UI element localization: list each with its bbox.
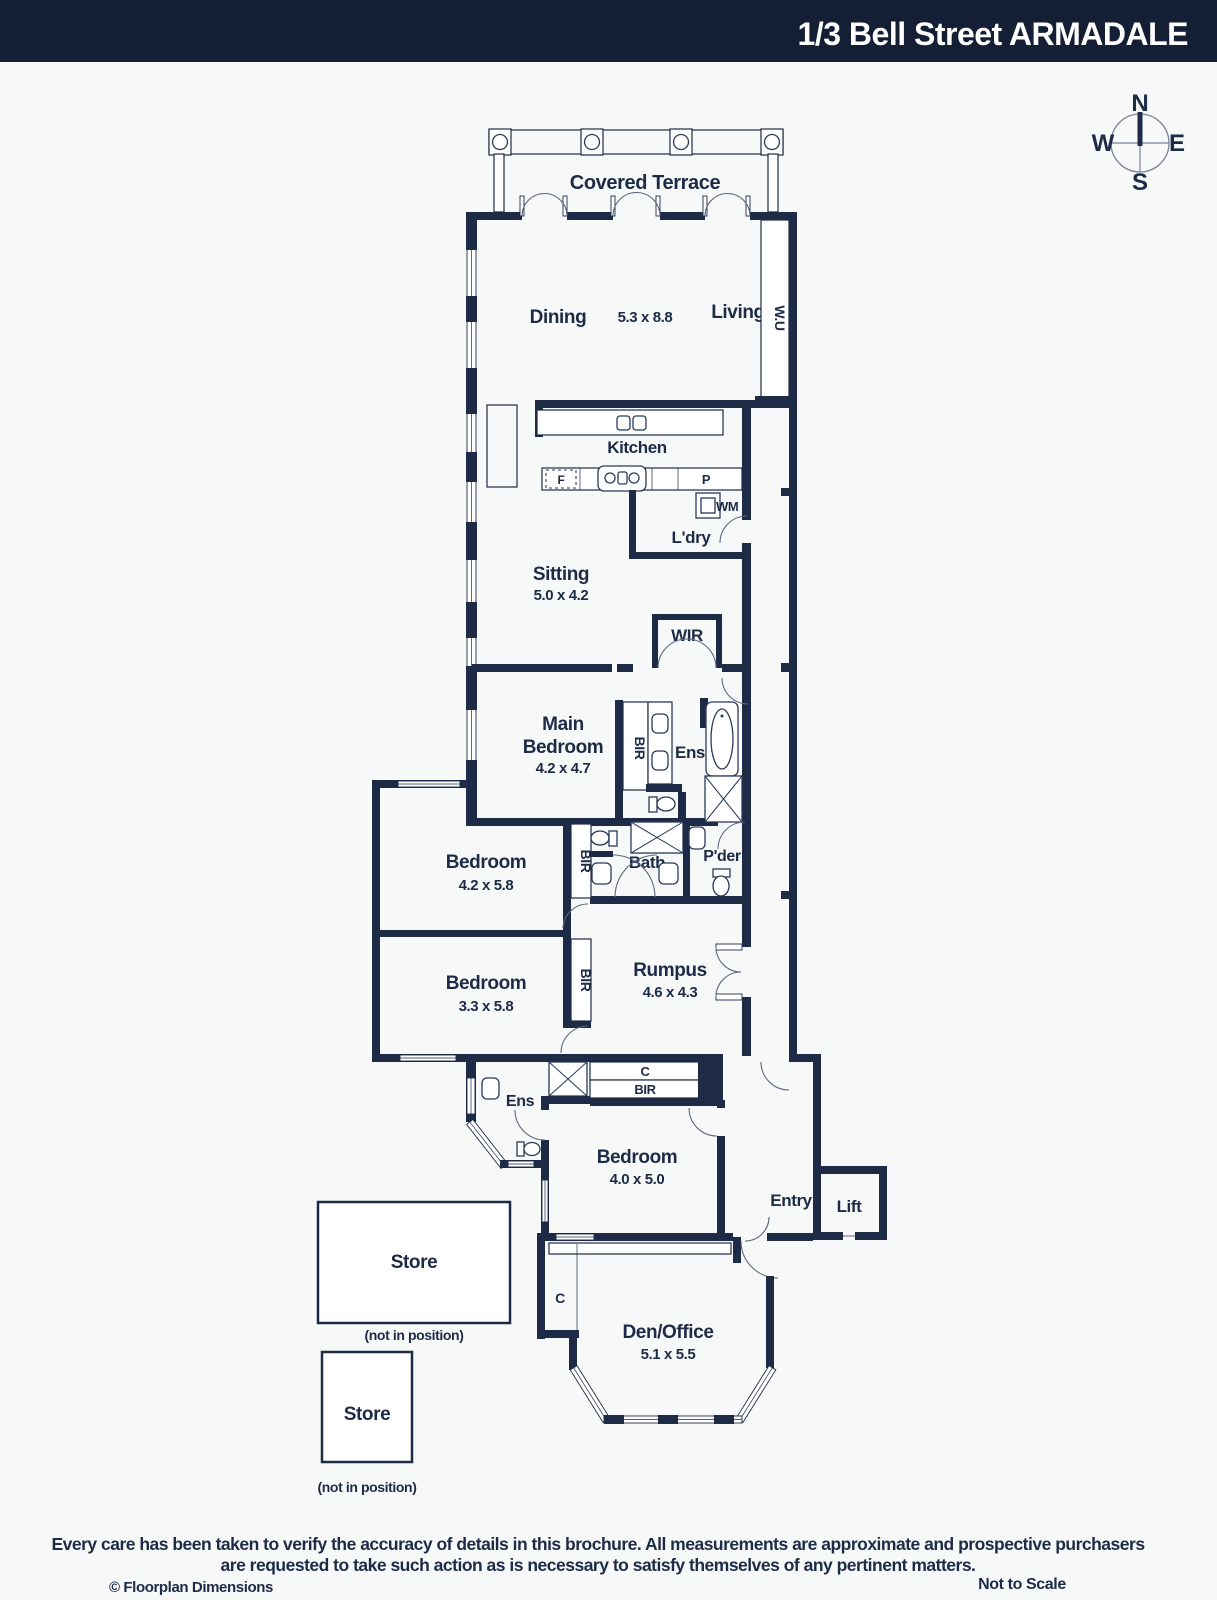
toilet-symbol (517, 1142, 540, 1156)
label-cupboard-1: C (641, 1064, 651, 1079)
page-title: 1/3 Bell Street ARMADALE (798, 16, 1189, 52)
copyright: © Floorplan Dimensions (109, 1579, 273, 1596)
sitting: Sitting 5.0 x 4.2 (533, 564, 589, 604)
room-dims-den-office: 5.1 x 5.5 (641, 1346, 696, 1363)
room-label-den-office: Den/Office (622, 1322, 713, 1343)
note-store-2: (not in position) (318, 1479, 417, 1495)
room-label-laundry: L'dry (672, 528, 712, 547)
compass-n-label: N (1131, 90, 1148, 117)
room-label-powder: P'der (703, 848, 741, 865)
room-label-kitchen: Kitchen (607, 438, 667, 457)
den-shelf (549, 1243, 731, 1254)
basin-symbol (482, 1078, 499, 1099)
room-label-rumpus: Rumpus (633, 960, 707, 981)
room-dims-bedroom-3: 3.3 x 5.8 (459, 998, 514, 1015)
label-wall-unit: W.U (772, 305, 788, 331)
room-label-ensuite-1: Ens (675, 743, 705, 762)
basin-symbol (659, 863, 678, 884)
shower-symbol (631, 822, 683, 853)
basin-symbol (652, 714, 668, 733)
label-bir-1: BIR (632, 737, 648, 760)
compass-s-label: S (1132, 169, 1148, 196)
window (542, 1180, 548, 1222)
label-cupboard-2: C (555, 1290, 565, 1306)
compass-e-label: E (1169, 130, 1185, 157)
room-label-living: Living (711, 302, 765, 323)
room-label-sitting: Sitting (533, 564, 589, 585)
note-store-1: (not in position) (365, 1327, 464, 1343)
room-label-bedroom-4: Bedroom (597, 1147, 678, 1168)
not-to-scale: Not to Scale (978, 1576, 1066, 1593)
shower-symbol (705, 776, 742, 822)
bathtub-symbol (706, 702, 738, 776)
label-bir-3: BIR (578, 969, 594, 992)
room-dims-rumpus: 4.6 x 4.3 (643, 984, 698, 1001)
window (398, 781, 460, 787)
cupboard-bir-block: C BIR (590, 1054, 723, 1106)
room-label-bedroom-3: Bedroom (446, 973, 527, 994)
room-label-covered-terrace: Covered Terrace (570, 172, 721, 194)
room-dims-main-bedroom: 4.2 x 4.7 (536, 760, 591, 777)
label-pantry: P (702, 472, 711, 487)
basin-symbol (689, 827, 705, 849)
disclaimer-line-2: are requested to take such action as is … (221, 1555, 976, 1575)
room-label-lift: Lift (837, 1197, 863, 1216)
room-dims-sitting: 5.0 x 4.2 (534, 587, 589, 604)
shower-symbol (549, 1062, 587, 1096)
page-background (0, 0, 1217, 1600)
toilet-symbol (591, 831, 617, 846)
basin-symbol (652, 751, 668, 770)
floorplan-page: 1/3 Bell Street ARMADALE N W E S Covered… (0, 0, 1217, 1600)
room-dims-bedroom-2: 4.2 x 5.8 (459, 877, 514, 894)
basin-symbol (592, 863, 611, 884)
label-washing-machine: WM (716, 499, 738, 514)
room-label-main-bedroom-1: Main (542, 714, 584, 735)
store-1: Store (not in position) (318, 1202, 510, 1343)
window (400, 1055, 456, 1061)
room-label-store-1: Store (391, 1252, 438, 1273)
room-label-wir: WIR (671, 626, 703, 645)
room-label-store-2: Store (344, 1404, 391, 1425)
room-label-entry: Entry (770, 1191, 812, 1210)
room-dims-bedroom-4: 4.0 x 5.0 (610, 1171, 665, 1188)
toilet-symbol (713, 869, 730, 896)
label-fridge: F (558, 473, 565, 487)
room-label-ensuite-2: Ens (506, 1093, 535, 1110)
room-label-bedroom-2: Bedroom (446, 852, 527, 873)
room-label-dining: Dining (530, 307, 587, 328)
toilet-symbol (649, 797, 675, 812)
window (556, 1234, 594, 1240)
room-label-main-bedroom-2: Bedroom (523, 737, 604, 758)
room-dims-dining-living: 5.3 x 8.8 (618, 309, 673, 326)
window (467, 1078, 475, 1114)
disclaimer-line-1: Every care has been taken to verify the … (51, 1534, 1145, 1554)
cooktop-symbol (598, 466, 646, 491)
header-bar: 1/3 Bell Street ARMADALE (0, 0, 1217, 62)
window (508, 1161, 534, 1167)
compass-w-label: W (1092, 130, 1115, 157)
label-bir-4: BIR (634, 1082, 656, 1097)
